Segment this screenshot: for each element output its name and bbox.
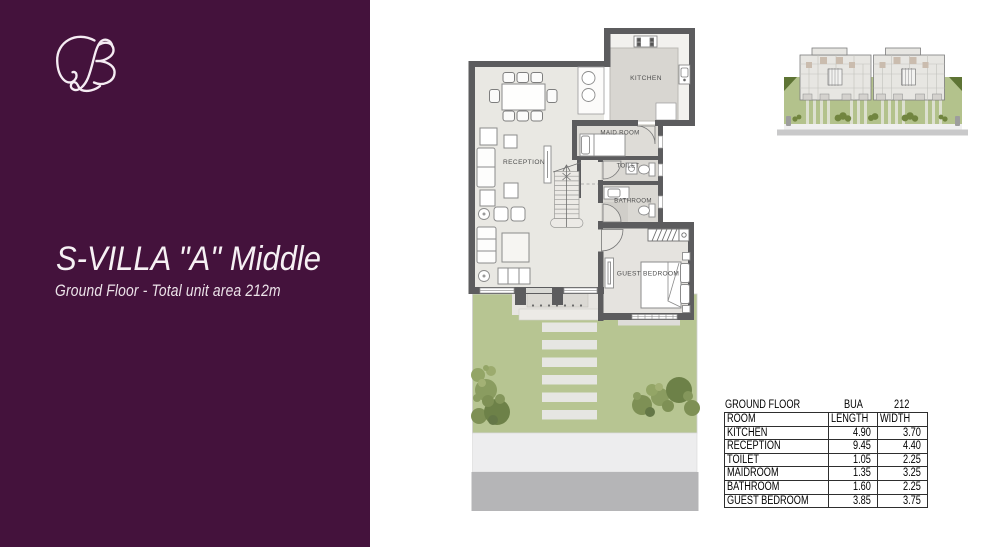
svg-text:KITCHEN: KITCHEN [630,75,662,82]
svg-text:GUEST BEDROOM: GUEST BEDROOM [617,271,679,278]
svg-text:BATHROOM: BATHROOM [614,198,652,205]
svg-text:TOILET: TOILET [617,164,640,170]
svg-text:MAID ROOM: MAID ROOM [600,130,639,137]
svg-text:RECEPTION: RECEPTION [503,159,545,166]
